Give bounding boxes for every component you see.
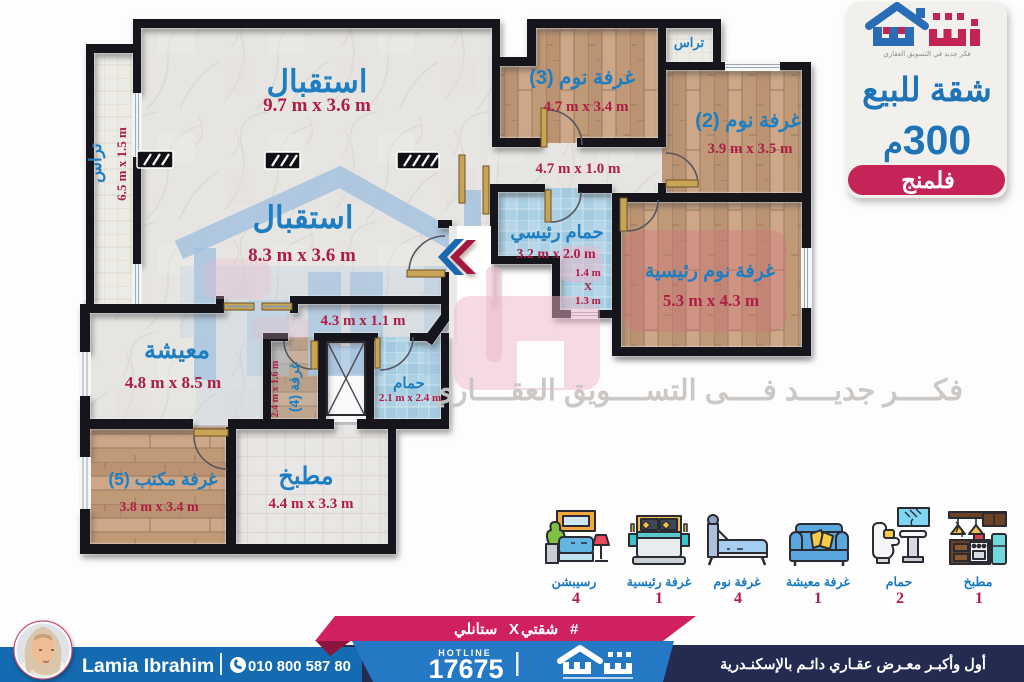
svg-text:010 800 587 80: 010 800 587 80 xyxy=(248,659,351,675)
svg-text:5.3 m x 4.3 m: 5.3 m x 4.3 m xyxy=(663,291,759,310)
svg-text:3.9 m x 3.5 m: 3.9 m x 3.5 m xyxy=(708,141,793,157)
svg-text:غرفة (4): غرفة (4) xyxy=(286,361,303,412)
svg-text:غرفة معيشة: غرفة معيشة xyxy=(786,575,850,590)
svg-text:تراس: تراس xyxy=(674,35,705,51)
svg-text:فلمنج: فلمنج xyxy=(901,167,955,195)
svg-text:8.3 m x 3.6 m: 8.3 m x 3.6 m xyxy=(248,245,356,266)
svg-text:شقة للبيع: شقة للبيع xyxy=(862,71,992,110)
svg-text:4.8 m x 8.5 m: 4.8 m x 8.5 m xyxy=(125,373,221,392)
svg-text:أول وأكبـر معـرض عقـاري دائـم: أول وأكبـر معـرض عقـاري دائـم بالإسكنـدر… xyxy=(720,653,986,674)
svg-text:حمام: حمام xyxy=(886,575,913,590)
svg-text:غرفة نوم (2): غرفة نوم (2) xyxy=(695,110,801,133)
svg-text:3.8 m x 3.4 m: 3.8 m x 3.4 m xyxy=(119,500,199,515)
svg-text:غرفة رئيسية: غرفة رئيسية xyxy=(627,575,692,590)
svg-text:1.3 m: 1.3 m xyxy=(575,295,601,307)
svg-text:17675: 17675 xyxy=(428,654,503,682)
svg-text:استقبال: استقبال xyxy=(267,64,368,99)
svg-text:حمام رئيسي: حمام رئيسي xyxy=(510,222,603,243)
svg-text:غرفة نوم رئيسية: غرفة نوم رئيسية xyxy=(645,261,775,282)
svg-text:غرفة نوم (3): غرفة نوم (3) xyxy=(529,67,635,90)
svg-text:م: م xyxy=(883,125,903,163)
svg-text:X: X xyxy=(584,281,592,293)
svg-text:فكــــر جديــــد فــــى التســ: فكــــر جديــــد فــــى التســــويق العق… xyxy=(431,375,963,408)
svg-text:#: # xyxy=(570,621,579,638)
svg-text:Lamia Ibrahim: Lamia Ibrahim xyxy=(82,655,214,677)
svg-text:مطبخ: مطبخ xyxy=(278,463,333,491)
svg-text:غرفة مكتب (5): غرفة مكتب (5) xyxy=(108,469,218,490)
svg-text:رسيبشن: رسيبشن xyxy=(552,575,597,590)
svg-text:4.7 m x 1.0 m: 4.7 m x 1.0 m xyxy=(536,161,621,177)
svg-text:1: 1 xyxy=(655,590,663,607)
svg-text:4: 4 xyxy=(734,590,742,607)
svg-text:ستانلي: ستانلي xyxy=(454,621,497,639)
svg-text:حمام: حمام xyxy=(393,375,425,392)
svg-text:4.3 m x 1.1 m: 4.3 m x 1.1 m xyxy=(321,313,406,329)
svg-text:300: 300 xyxy=(903,117,971,163)
svg-text:2.4 m x 1.6 m: 2.4 m x 1.6 m xyxy=(270,360,281,417)
svg-text:4.4 m x 3.3 m: 4.4 m x 3.3 m xyxy=(269,496,354,512)
svg-text:3.2 m x 2.0 m: 3.2 m x 2.0 m xyxy=(516,247,596,262)
svg-text:استقبال: استقبال xyxy=(253,200,354,235)
svg-text:1: 1 xyxy=(814,590,822,607)
svg-text:2: 2 xyxy=(896,590,904,607)
svg-text:9.7 m x 3.6 m: 9.7 m x 3.6 m xyxy=(263,95,371,116)
svg-text:1: 1 xyxy=(975,590,983,607)
svg-text:4.7 m x 3.4 m: 4.7 m x 3.4 m xyxy=(544,99,629,115)
svg-text:شقتي: شقتي xyxy=(521,621,558,639)
svg-text:4: 4 xyxy=(572,590,580,607)
svg-text:مطبخ: مطبخ xyxy=(964,575,993,590)
svg-text:معيشة: معيشة xyxy=(144,337,210,364)
svg-text:X: X xyxy=(509,621,519,638)
svg-text:غرفة نوم: غرفة نوم xyxy=(713,575,761,590)
svg-text:6.5 m x 1.5 m: 6.5 m x 1.5 m xyxy=(114,127,129,201)
svg-text:فكر جديد في التسويق العقاري: فكر جديد في التسويق العقاري xyxy=(883,50,970,58)
svg-text:1.4 m: 1.4 m xyxy=(575,267,601,279)
svg-text:2.1 m x 2.4 m: 2.1 m x 2.4 m xyxy=(379,392,441,404)
svg-text:تراس: تراس xyxy=(86,143,106,183)
